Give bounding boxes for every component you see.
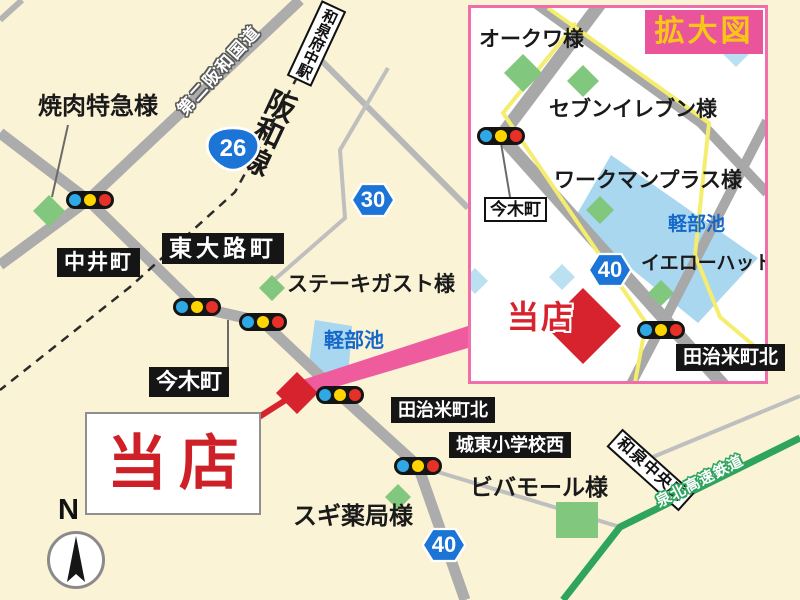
signal-blue-icon — [319, 389, 331, 401]
inset-poi-okuwa: オークワ様 — [479, 29, 584, 50]
traffic-light-higashiojicho — [173, 298, 221, 316]
signal-red-icon — [510, 130, 522, 142]
signal-yellow-icon — [257, 316, 269, 328]
signal-yellow-icon — [412, 460, 424, 472]
signal-blue-icon — [176, 301, 188, 313]
map-canvas: 焼肉特急様 中井町 東大路町 ステーキガスト様 軽部池 今木町 田治米町北 城東… — [0, 0, 800, 600]
inset-poi-workman-plus: ワークマンプラス様 — [554, 170, 742, 191]
signal-blue-icon — [242, 316, 254, 328]
road-corner — [0, 0, 22, 20]
signal-yellow-icon — [334, 389, 346, 401]
poi-sugi-pharmacy: スギ薬局様 — [293, 505, 413, 529]
inset-landmark-seven — [567, 65, 599, 97]
inset-traffic-light-tajime-kita — [637, 321, 685, 339]
compass-north-label: N — [58, 496, 79, 525]
poi-yakiniku: 焼肉特急様 — [38, 95, 158, 119]
signal-blue-icon — [69, 194, 81, 206]
inset-blue-diamond-3 — [471, 268, 488, 294]
signal-blue-icon — [397, 460, 409, 472]
inset-pond-label: 軽部池 — [668, 215, 725, 234]
place-box-imakicho-main: 今木町 — [149, 367, 229, 397]
signal-yellow-icon — [84, 194, 96, 206]
place-box-joto-shogakko-nishi: 城東小学校西 — [449, 432, 571, 458]
inset-traffic-light-imakicho — [477, 127, 525, 145]
signal-blue-icon — [640, 324, 652, 336]
route-40-number-main: 40 — [421, 526, 467, 564]
signal-red-icon — [349, 389, 361, 401]
inset-title-badge: 拡大図 — [645, 10, 763, 54]
signal-blue-icon — [480, 130, 492, 142]
traffic-light-mid — [239, 313, 287, 331]
signal-red-icon — [670, 324, 682, 336]
inset-blue-diamond-1 — [549, 264, 575, 290]
route-shield-26: 26 — [204, 126, 262, 172]
route-shield-30: 30 — [350, 181, 396, 219]
traffic-light-joto-nishi — [394, 457, 442, 475]
place-box-tajime-kita-main: 田治米町北 — [391, 397, 495, 423]
inset-place-box-tajime-kita: 田治米町北 — [676, 344, 785, 371]
route-shield-40-main: 40 — [421, 526, 467, 564]
poi-vivamall: ビバモール様 — [470, 476, 608, 499]
inset-poi-seven-eleven: セブンイレブン様 — [549, 99, 717, 120]
inset-map: 拡大図 オークワ様 セブンイレブン様 ワークマンプラス様 イエローハット様 軽部… — [468, 5, 768, 384]
place-box-higashiojicho: 東大路町 — [162, 233, 284, 264]
route-shield-40-inset: 40 — [587, 251, 633, 289]
inset-store-label: 当店 — [507, 301, 575, 333]
place-box-nakaicho: 中井町 — [57, 248, 140, 277]
landmark-square-vivamall — [556, 502, 598, 538]
store-callout-box: 当店 — [85, 412, 261, 515]
inset-title-label: 拡大図 — [655, 17, 754, 47]
signal-red-icon — [272, 316, 284, 328]
signal-yellow-icon — [191, 301, 203, 313]
route-26-number: 26 — [204, 126, 262, 172]
signal-red-icon — [427, 460, 439, 472]
signal-red-icon — [99, 194, 111, 206]
route-40-number-inset: 40 — [587, 251, 633, 289]
compass-icon — [47, 531, 105, 589]
signal-yellow-icon — [655, 324, 667, 336]
traffic-light-nakaicho — [66, 191, 114, 209]
pond-label-main: 軽部池 — [324, 331, 384, 351]
traffic-light-tajime-kita-main — [316, 386, 364, 404]
store-callout-label: 当店 — [95, 434, 251, 494]
signal-yellow-icon — [495, 130, 507, 142]
inset-place-box-imakicho: 今木町 — [484, 197, 547, 222]
route-30-number: 30 — [350, 181, 396, 219]
poi-steak-gust: ステーキガスト様 — [287, 274, 455, 295]
landmark-diamond-steakgust — [259, 275, 285, 301]
signal-red-icon — [206, 301, 218, 313]
compass-needle-icon — [67, 536, 85, 582]
inset-poi-yellow-hat: イエローハット様 — [641, 254, 768, 273]
